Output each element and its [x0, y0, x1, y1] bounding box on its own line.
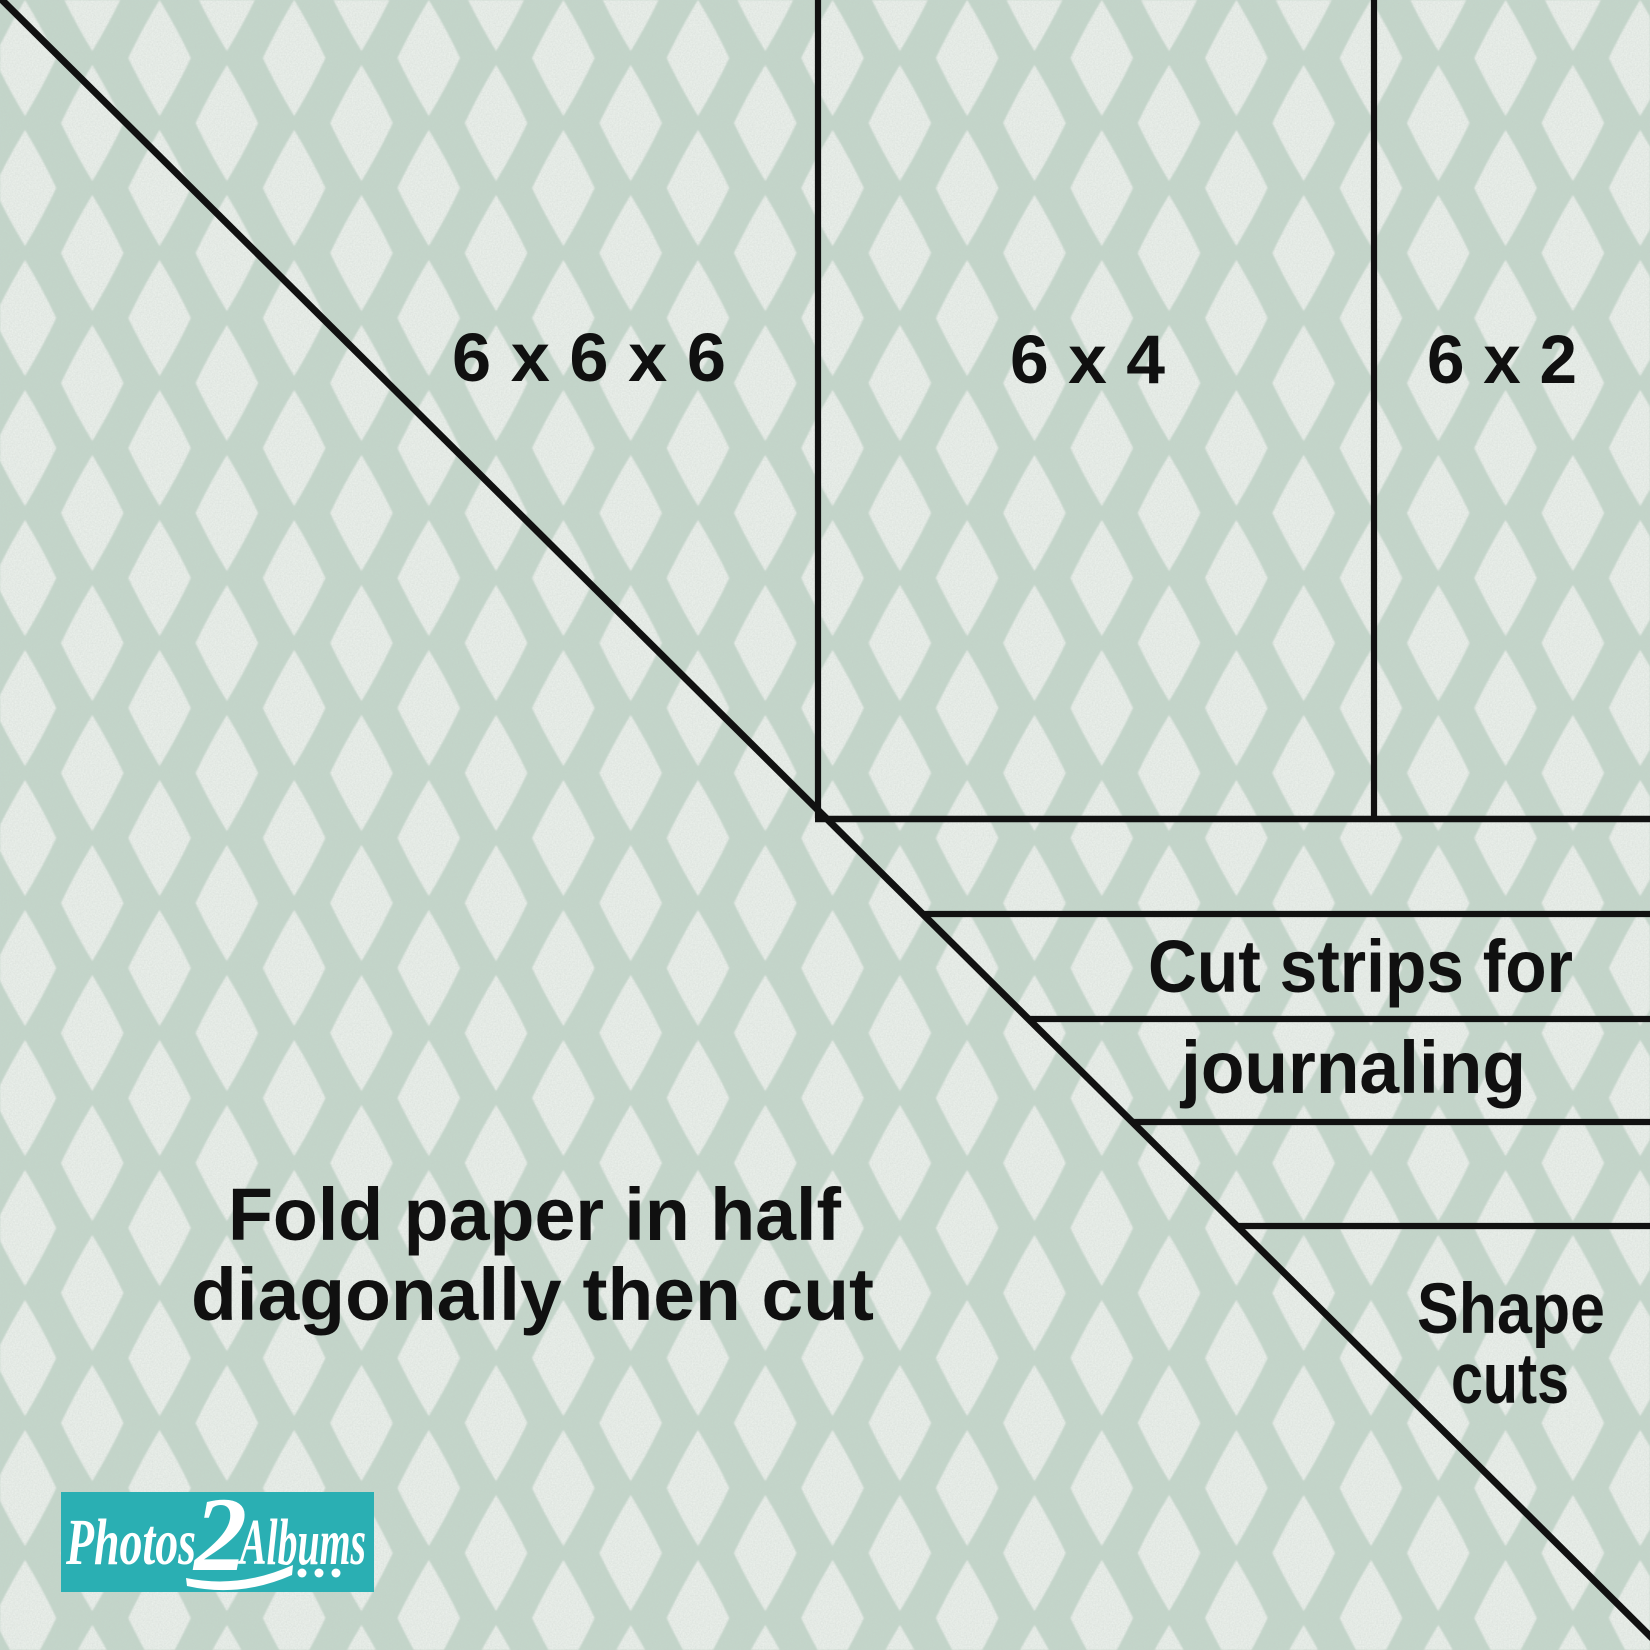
svg-text:Albums: Albums — [238, 1506, 366, 1579]
svg-text:cuts: cuts — [1451, 1340, 1569, 1419]
svg-text:Shape: Shape — [1417, 1270, 1605, 1349]
svg-text:journaling: journaling — [1179, 1026, 1526, 1109]
svg-text:Fold paper in half: Fold paper in half — [228, 1173, 841, 1256]
svg-text:6 x 6 x 6: 6 x 6 x 6 — [452, 319, 726, 396]
svg-text:Photos: Photos — [65, 1506, 196, 1579]
svg-text:2: 2 — [192, 1476, 247, 1593]
svg-text:Cut strips for: Cut strips for — [1148, 925, 1573, 1008]
svg-text:diagonally then cut: diagonally then cut — [191, 1253, 874, 1336]
svg-text:6 x 4: 6 x 4 — [1010, 321, 1165, 398]
svg-text:6 x 2: 6 x 2 — [1427, 321, 1577, 398]
